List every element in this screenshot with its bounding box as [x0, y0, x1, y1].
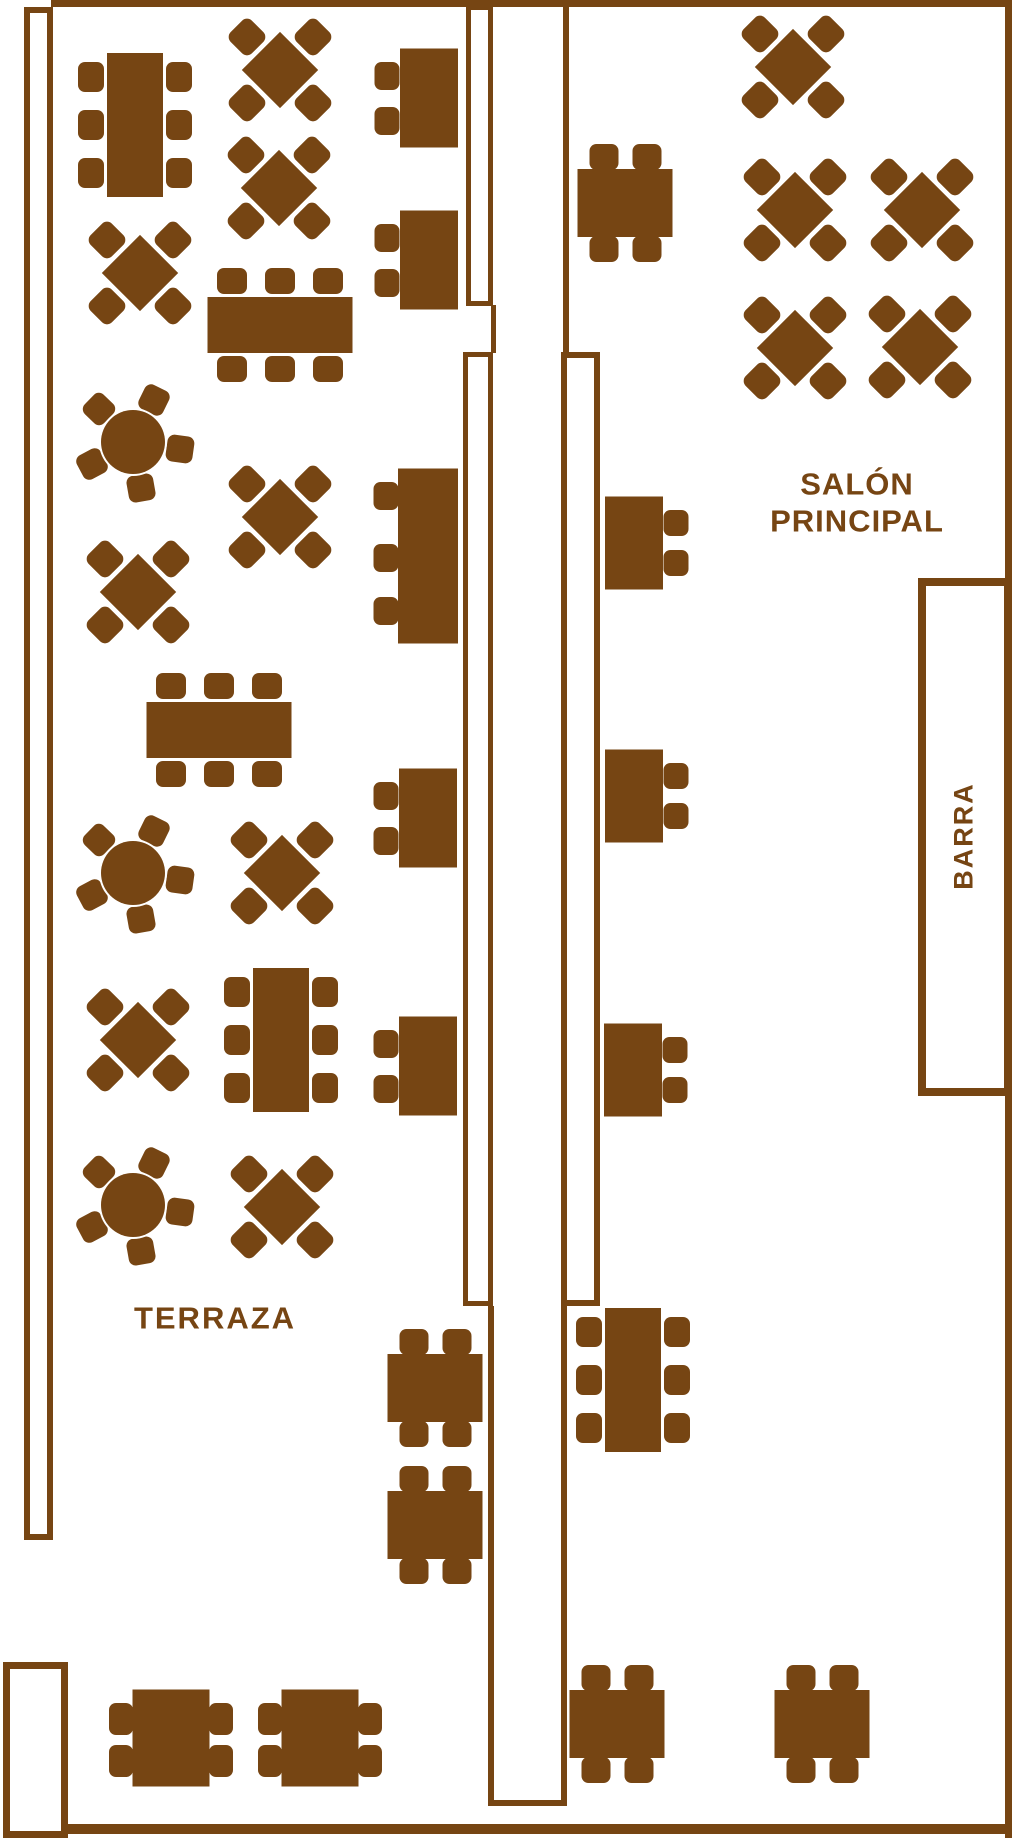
wall-aisle-low-left-line	[488, 1306, 494, 1806]
chair	[358, 1703, 382, 1735]
chair	[374, 482, 399, 510]
chair	[258, 1745, 282, 1777]
chair	[664, 1317, 690, 1347]
chair	[109, 1745, 133, 1777]
table-top	[107, 53, 163, 197]
chair	[664, 550, 689, 576]
chair	[313, 356, 343, 382]
chair	[374, 597, 399, 625]
chair	[374, 544, 399, 572]
chair	[224, 1073, 250, 1103]
chair	[787, 1757, 816, 1783]
zone-label-salon-line1: SALÓN	[800, 469, 914, 500]
wall-aisle-mid-left	[463, 352, 493, 1306]
zone-label-barra: BARRA	[951, 782, 978, 890]
chair	[400, 1558, 429, 1584]
zone-label-salon-line2: PRINCIPAL	[770, 506, 944, 537]
chair	[576, 1317, 602, 1347]
chair	[224, 977, 250, 1007]
table-top	[400, 211, 458, 310]
table-top	[578, 169, 673, 237]
table-top	[208, 297, 353, 353]
chair	[576, 1365, 602, 1395]
chair	[165, 865, 195, 895]
chair	[374, 1030, 399, 1058]
chair	[224, 1025, 250, 1055]
chair	[78, 158, 104, 188]
chair	[166, 62, 192, 92]
table-top	[101, 841, 165, 905]
chair	[582, 1757, 611, 1783]
chair	[165, 1197, 195, 1227]
chair	[443, 1466, 472, 1492]
wall-top-wall	[51, 0, 1012, 7]
chair	[375, 62, 400, 90]
chair	[664, 803, 689, 829]
wall-aisle-top-right-line	[563, 0, 569, 352]
table-top	[400, 49, 458, 148]
table-top	[147, 702, 292, 758]
chair	[156, 673, 186, 699]
table-top	[388, 1354, 483, 1422]
chair	[633, 236, 662, 262]
table-top	[570, 1690, 665, 1758]
chair	[443, 1421, 472, 1447]
table-top	[399, 1017, 457, 1116]
table-top	[605, 750, 663, 843]
wall-entrance-vestibule	[3, 1662, 68, 1838]
chair	[312, 1025, 338, 1055]
chair	[664, 1413, 690, 1443]
chair	[374, 827, 399, 855]
chair	[312, 1073, 338, 1103]
chair	[663, 1077, 688, 1103]
chair	[582, 1665, 611, 1691]
chair	[209, 1703, 233, 1735]
chair	[400, 1421, 429, 1447]
chair	[400, 1329, 429, 1355]
wall-aisle-left-connector	[491, 305, 496, 353]
chair	[664, 510, 689, 536]
chair	[375, 269, 400, 297]
chair	[209, 1745, 233, 1777]
chair	[204, 761, 234, 787]
chair	[358, 1745, 382, 1777]
table-top	[282, 1690, 359, 1787]
chair	[625, 1665, 654, 1691]
chair	[165, 434, 195, 464]
zone-label-terraza: TERRAZA	[134, 1303, 296, 1334]
chair	[258, 1703, 282, 1735]
chair	[443, 1558, 472, 1584]
chair	[400, 1466, 429, 1492]
chair	[125, 903, 156, 934]
chair	[156, 761, 186, 787]
chair	[265, 268, 295, 294]
table-top	[101, 1173, 165, 1237]
chair	[265, 356, 295, 382]
chair	[374, 1075, 399, 1103]
table-top	[101, 410, 165, 474]
chair	[204, 673, 234, 699]
chair	[787, 1665, 816, 1691]
chair	[590, 236, 619, 262]
table-top	[398, 469, 458, 644]
chair	[125, 1235, 156, 1266]
table-top	[388, 1491, 483, 1559]
chair	[78, 110, 104, 140]
chair	[830, 1665, 859, 1691]
chair	[576, 1413, 602, 1443]
table-top	[605, 1308, 661, 1452]
chair	[217, 268, 247, 294]
chair	[590, 144, 619, 170]
wall-aisle-mid-right	[561, 352, 600, 1306]
chair	[443, 1329, 472, 1355]
chair	[252, 673, 282, 699]
chair	[374, 782, 399, 810]
wall-left-wall	[24, 7, 53, 1540]
chair	[633, 144, 662, 170]
chair	[166, 110, 192, 140]
chair	[78, 62, 104, 92]
chair	[664, 1365, 690, 1395]
chair	[375, 107, 400, 135]
chair	[664, 763, 689, 789]
table-top	[253, 968, 309, 1112]
chair	[375, 224, 400, 252]
table-top	[605, 497, 663, 590]
chair	[166, 158, 192, 188]
chair	[217, 356, 247, 382]
floor-plan: TERRAZA SALÓN PRINCIPAL BARRA	[0, 0, 1012, 1838]
chair	[312, 977, 338, 1007]
chair	[252, 761, 282, 787]
wall-aisle-low-right-line	[561, 1306, 567, 1806]
wall-bottom-wall	[62, 1824, 1012, 1834]
wall-aisle-bottom-cap	[488, 1800, 567, 1806]
chair	[830, 1757, 859, 1783]
chair	[109, 1703, 133, 1735]
chair	[125, 472, 156, 503]
table-top	[133, 1690, 210, 1787]
chair	[625, 1757, 654, 1783]
table-top	[399, 769, 457, 868]
wall-aisle-top-left	[466, 5, 493, 306]
chair	[313, 268, 343, 294]
table-top	[604, 1024, 662, 1117]
chair	[663, 1037, 688, 1063]
table-top	[775, 1690, 870, 1758]
